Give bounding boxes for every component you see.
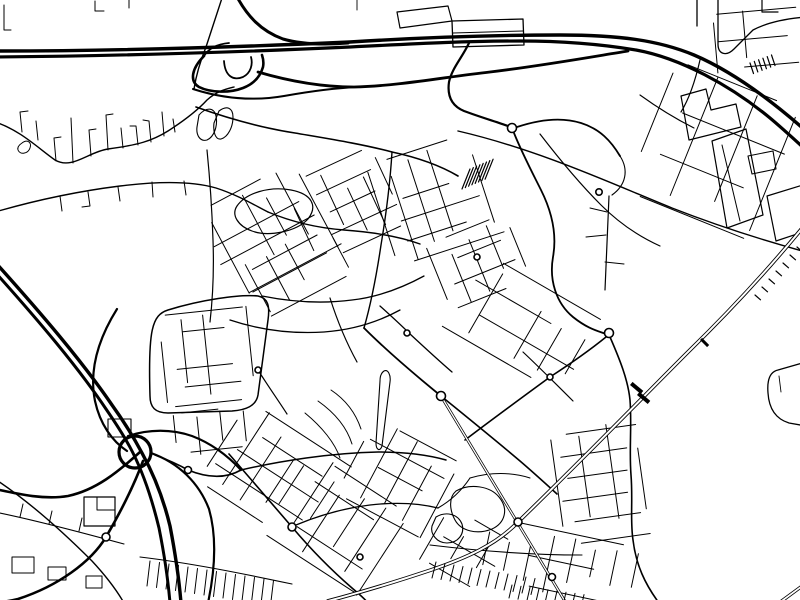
roundabout-icons-layer (102, 124, 614, 581)
minor-roads-layer (20, 0, 781, 531)
map-canvas (0, 0, 800, 600)
map-image (0, 0, 800, 600)
building-outlines-layer (12, 6, 800, 588)
motorway-layer (0, 0, 800, 600)
railway-layer (328, 216, 800, 600)
grid-streets-layer (161, 7, 800, 600)
